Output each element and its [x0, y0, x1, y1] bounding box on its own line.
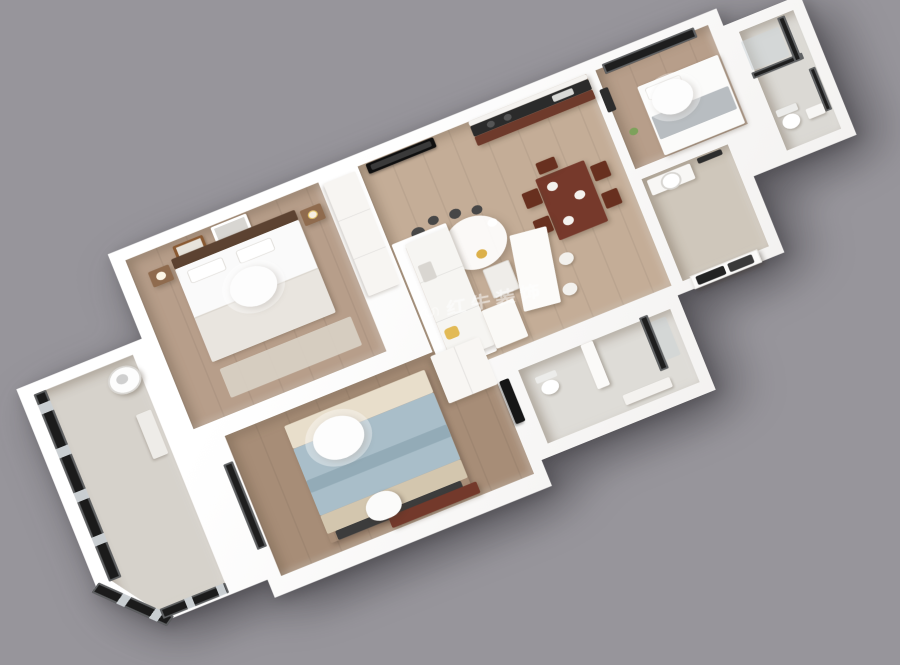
- apartment-render: 红牛装饰: [0, 0, 900, 665]
- watermark-logo-icon: [418, 302, 441, 321]
- plate: [573, 189, 587, 202]
- flower-vase: [307, 209, 319, 220]
- plate: [562, 214, 576, 227]
- table-lamp: [155, 270, 167, 281]
- plate: [546, 180, 560, 193]
- floorplan-render-canvas: { "scene": { "view": "3d-axonometric-apa…: [0, 0, 900, 600]
